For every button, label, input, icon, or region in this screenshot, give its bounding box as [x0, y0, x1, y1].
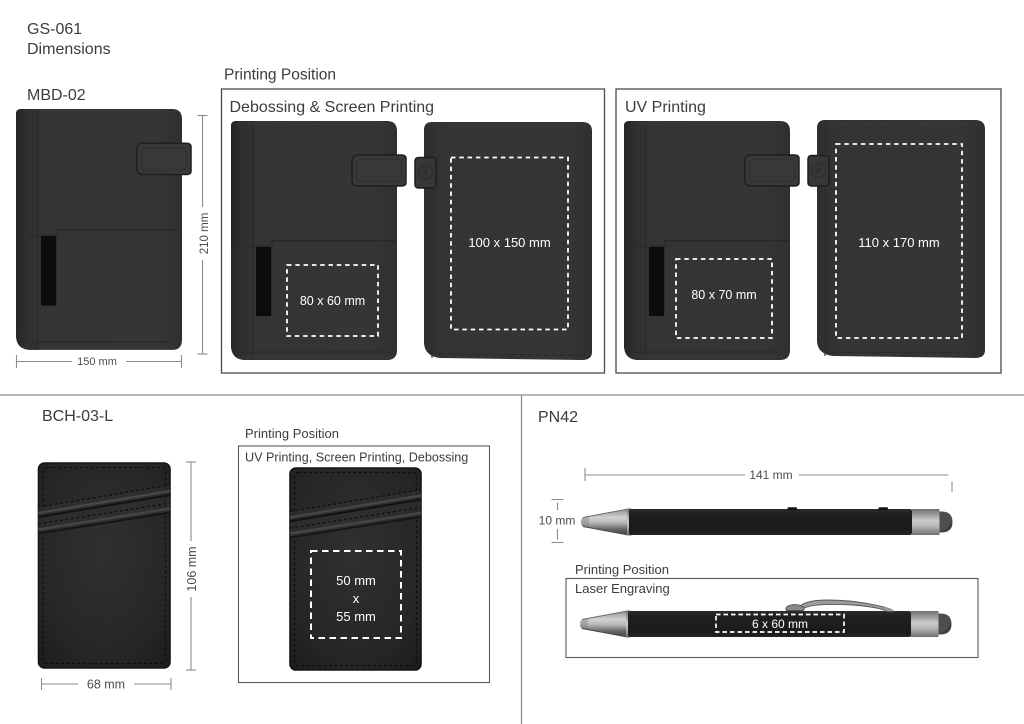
svg-text:10 mm: 10 mm — [539, 514, 576, 528]
svg-text:110 x 170 mm: 110 x 170 mm — [858, 235, 939, 250]
svg-text:Dimensions: Dimensions — [27, 41, 111, 58]
svg-text:80 x 60 mm: 80 x 60 mm — [300, 294, 365, 308]
svg-text:UV Printing: UV Printing — [625, 99, 706, 116]
svg-text:50 mm: 50 mm — [336, 573, 376, 588]
svg-text:141 mm: 141 mm — [749, 468, 792, 482]
svg-text:Printing Position: Printing Position — [575, 562, 669, 577]
svg-text:80 x 70 mm: 80 x 70 mm — [691, 288, 756, 302]
svg-text:MBD-02: MBD-02 — [27, 87, 86, 104]
svg-text:210 mm: 210 mm — [199, 213, 211, 255]
svg-text:GS-061: GS-061 — [27, 21, 82, 38]
svg-text:PN42: PN42 — [538, 409, 578, 426]
svg-text:Debossing & Screen Printing: Debossing & Screen Printing — [230, 99, 435, 116]
svg-text:150 mm: 150 mm — [77, 356, 117, 368]
svg-text:6 x 60 mm: 6 x 60 mm — [752, 617, 808, 631]
svg-text:68 mm: 68 mm — [87, 678, 125, 692]
svg-text:Printing Position: Printing Position — [245, 426, 339, 441]
svg-text:100 x 150 mm: 100 x 150 mm — [468, 235, 550, 250]
svg-text:Printing Position: Printing Position — [224, 67, 336, 84]
svg-text:BCH-03-L: BCH-03-L — [42, 408, 113, 425]
svg-text:Laser Engraving: Laser Engraving — [575, 581, 670, 596]
svg-text:UV Printing, Screen Printing,: UV Printing, Screen Printing, Debossing — [245, 451, 468, 465]
svg-text:55 mm: 55 mm — [336, 609, 376, 624]
svg-text:106 mm: 106 mm — [185, 546, 199, 591]
svg-text:x: x — [353, 591, 360, 606]
